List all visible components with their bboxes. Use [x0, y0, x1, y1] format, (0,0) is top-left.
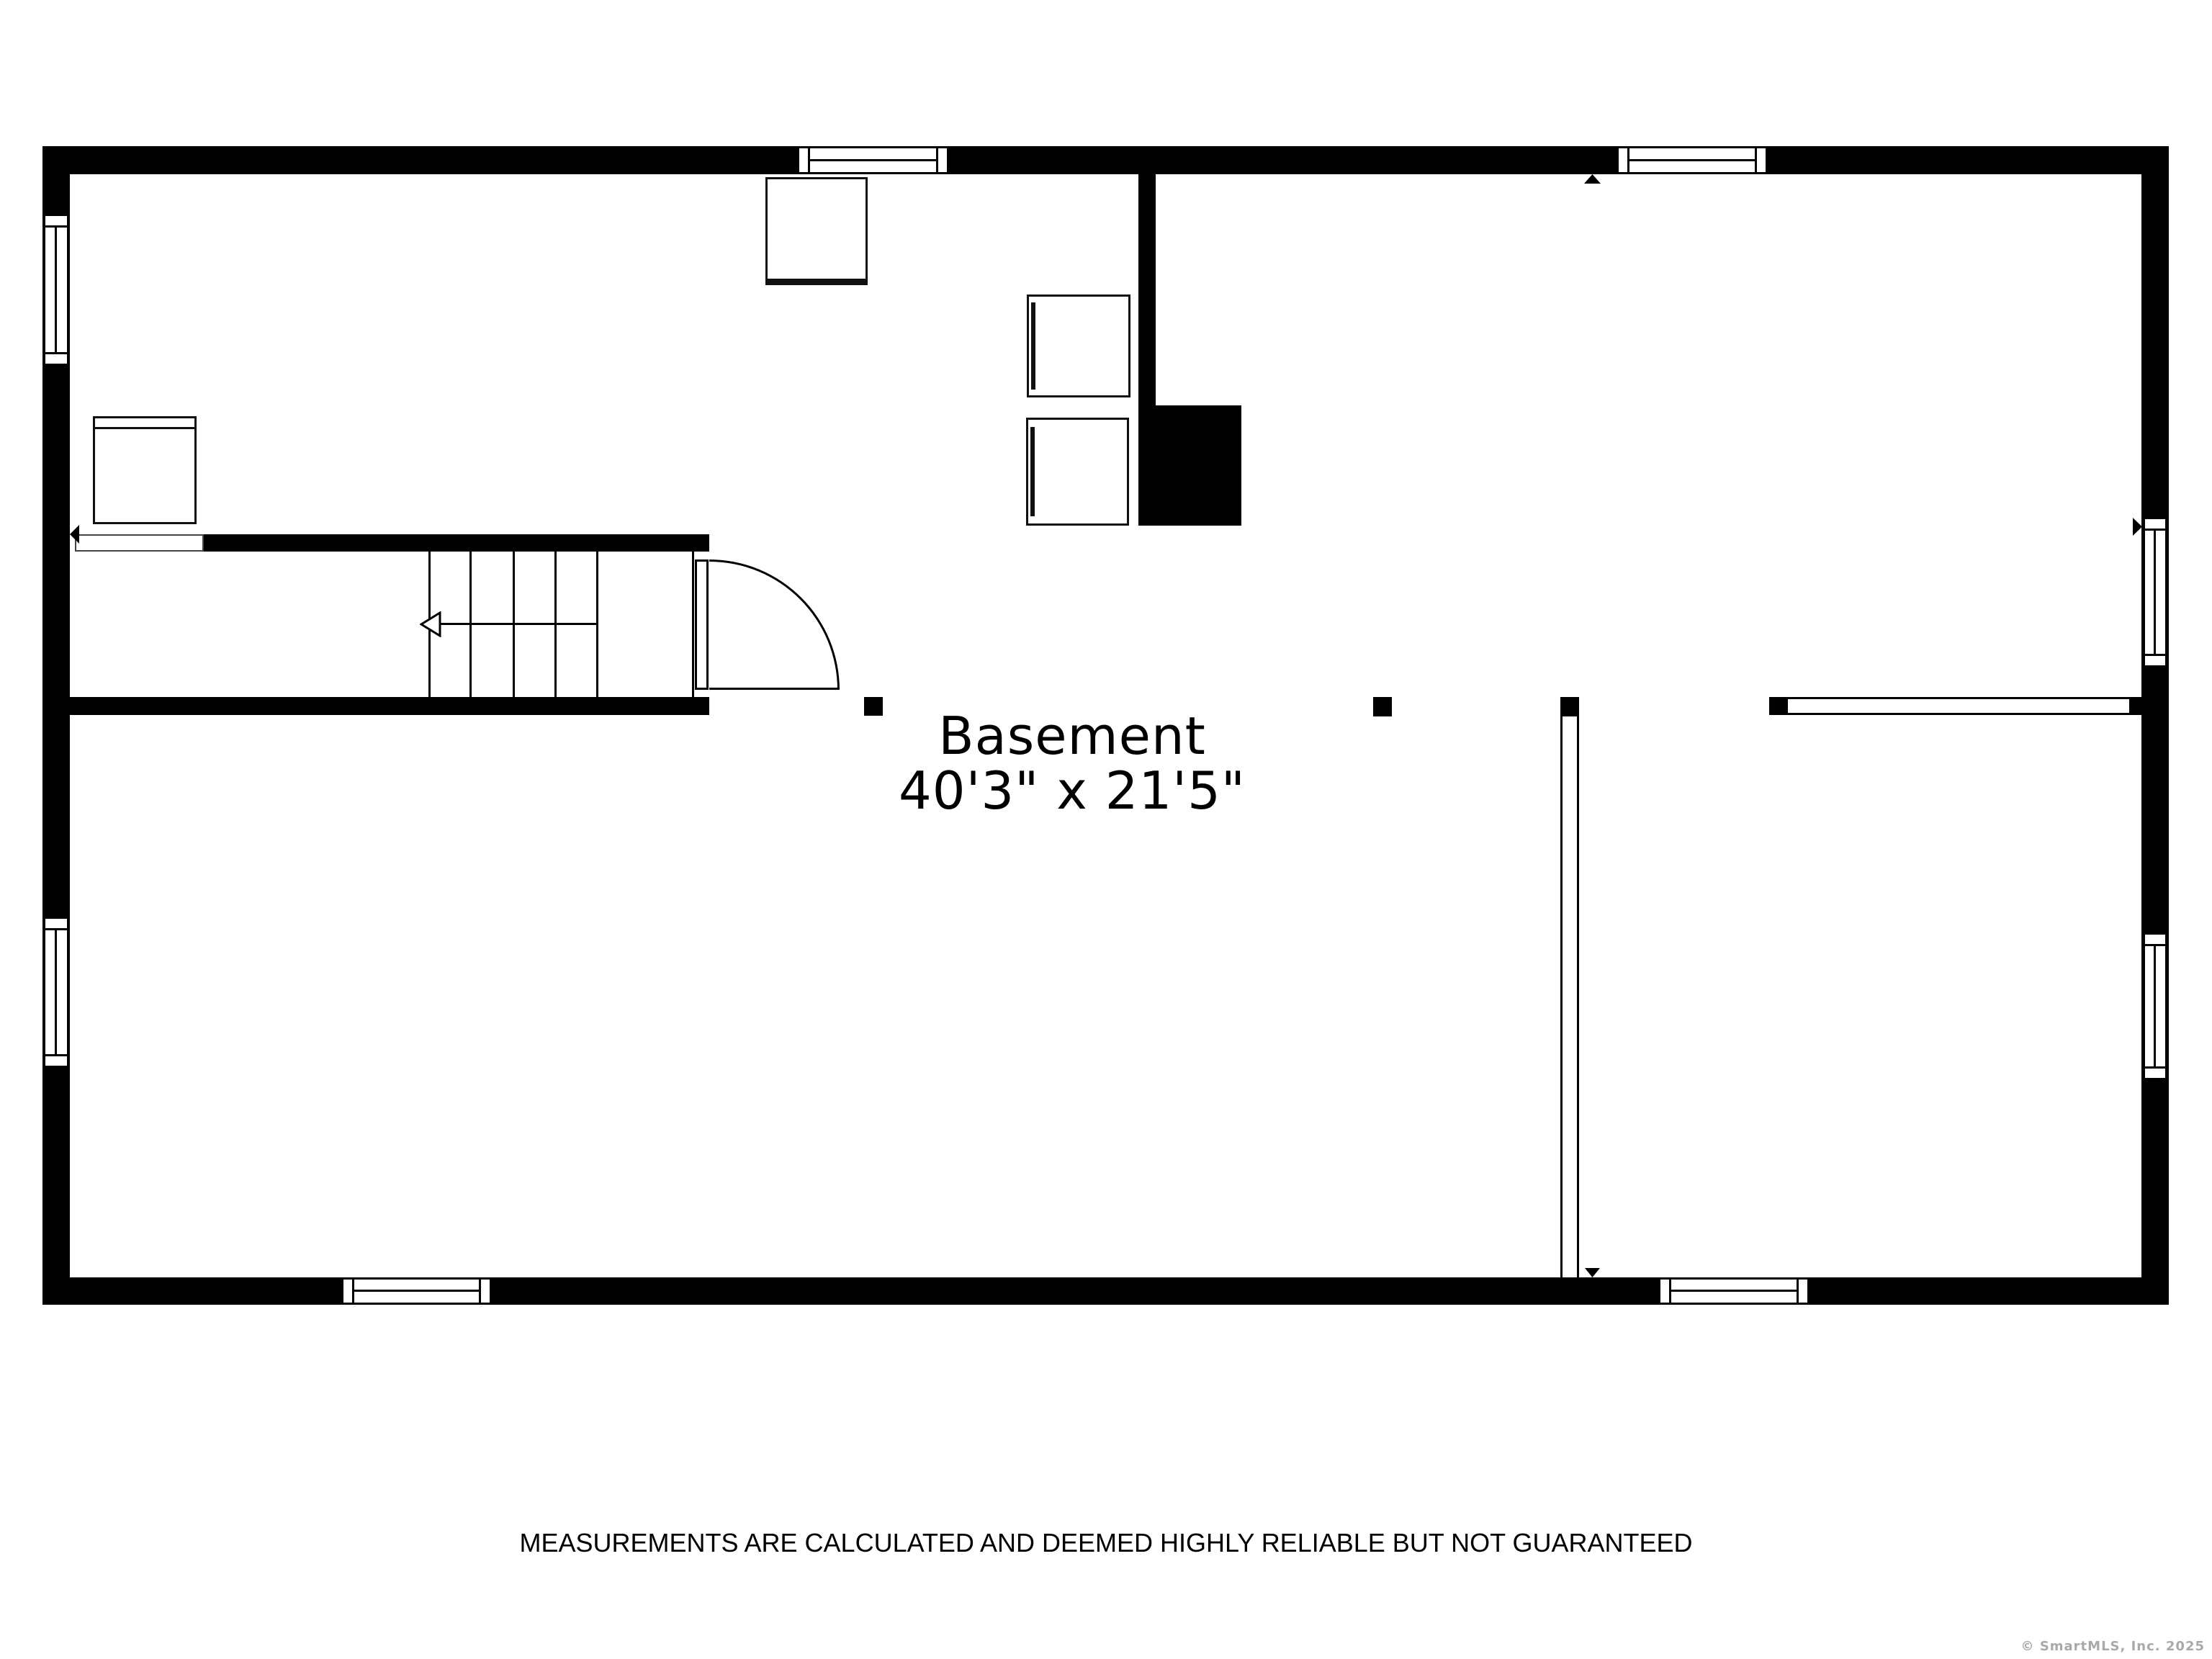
room-dimensions: 40'3" x 21'5" [784, 763, 1360, 818]
arrow-up-solid-icon [1584, 174, 1601, 184]
window-mullion [1629, 159, 1755, 161]
appliance-1 [765, 177, 868, 285]
stair-tread [596, 552, 598, 697]
stairwell-wall-top [204, 534, 709, 552]
window-jamb [1755, 148, 1757, 172]
window-jamb [2145, 654, 2165, 656]
appliance-2 [93, 416, 197, 524]
door-frame-line [692, 552, 694, 697]
opening-end-cap-left [1769, 697, 1788, 715]
window-mullion [810, 159, 936, 161]
window-jamb [936, 148, 938, 172]
appliance-detail-line [1031, 302, 1035, 390]
arrow-down-solid-icon [1585, 1268, 1600, 1277]
arrow-left-solid-icon [70, 525, 79, 544]
opening-end-cap-right [2129, 697, 2141, 715]
door-swing-arc [709, 559, 840, 690]
window-mullion [354, 1290, 479, 1292]
room-label-block: Basement 40'3" x 21'5" [784, 709, 1360, 818]
support-post-2 [1373, 697, 1392, 716]
room-name: Basement [784, 709, 1360, 763]
window-jamb [479, 1280, 481, 1303]
window-jamb [1797, 1280, 1799, 1303]
stairwell-wall-bottom [42, 697, 709, 715]
arrow-right-solid-icon [2133, 518, 2142, 536]
interior-wall-top [1138, 174, 1156, 405]
window-mullion [2154, 531, 2156, 654]
chimney-block [1138, 405, 1241, 526]
copyright-text: © SmartMLS, Inc. 2025 [2021, 1639, 2205, 1654]
window-left-lower [43, 917, 69, 1068]
window-mullion [2154, 946, 2156, 1066]
window-bottom-right [1658, 1277, 1809, 1305]
window-bottom-left [341, 1277, 492, 1305]
window-mullion [55, 228, 57, 352]
stair-arrow-shaft [439, 623, 596, 625]
window-left-upper [43, 214, 69, 366]
outer-wall-right [2141, 146, 2169, 1305]
window-top-right [1617, 146, 1768, 174]
window-jamb [45, 1054, 67, 1056]
window-jamb [45, 352, 67, 354]
window-right-lower [2143, 932, 2167, 1080]
door-open-line [709, 688, 840, 690]
appliance-3 [1027, 295, 1130, 397]
door-leaf [695, 559, 709, 690]
wall-opening-band [1788, 697, 2129, 715]
window-right-upper [2143, 517, 2167, 667]
stair-landing-opening [75, 534, 204, 552]
window-top-left [797, 146, 949, 174]
outer-wall-top [42, 146, 2169, 174]
appliance-detail-line [95, 427, 194, 429]
partition-wall-vertical [1560, 716, 1579, 1277]
window-mullion [1671, 1290, 1797, 1292]
support-post-3 [1560, 697, 1579, 716]
window-mullion [55, 930, 57, 1054]
floorplan-canvas: Basement 40'3" x 21'5" MEASUREMENTS ARE … [0, 0, 2212, 1659]
appliance-4 [1026, 418, 1129, 526]
window-jamb [2145, 1066, 2165, 1069]
disclaimer-text: MEASUREMENTS ARE CALCULATED AND DEEMED H… [0, 1528, 2212, 1558]
appliance-detail-line [1030, 427, 1035, 516]
arrow-left-outline-icon [420, 611, 441, 637]
